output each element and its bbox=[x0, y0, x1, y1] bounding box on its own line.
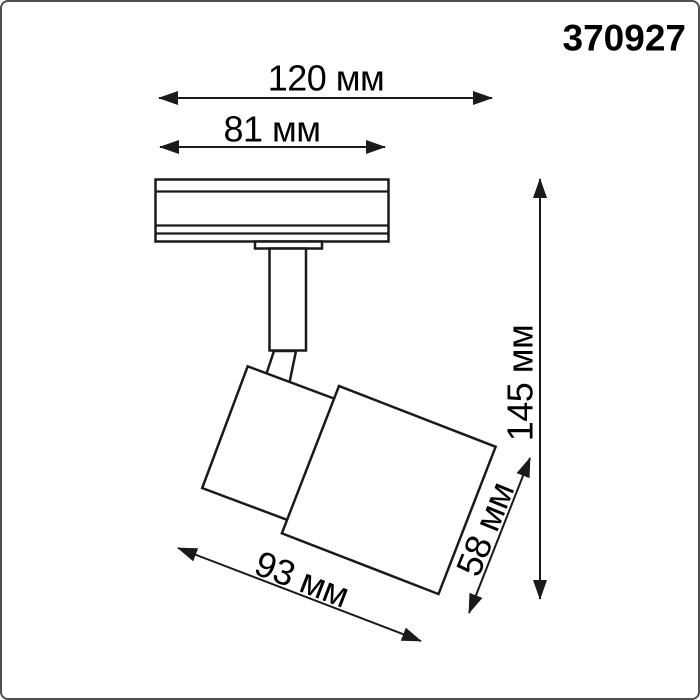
product-dimension-drawing: 120 мм 81 мм 145 мм 93 мм 58 мм 370927 bbox=[2, 2, 700, 700]
drawing-page: 120 мм 81 мм 145 мм 93 мм 58 мм 370927 bbox=[0, 0, 700, 700]
dim-label-track-length: 120 мм bbox=[268, 58, 385, 99]
fixture-stem bbox=[270, 249, 307, 351]
dim-label-total-height: 145 мм bbox=[500, 325, 541, 442]
product-code: 370927 bbox=[563, 18, 686, 59]
fixture-outline bbox=[156, 180, 496, 595]
fixture-track-adapter bbox=[156, 180, 389, 242]
dim-label-base-width: 81 мм bbox=[223, 109, 320, 150]
